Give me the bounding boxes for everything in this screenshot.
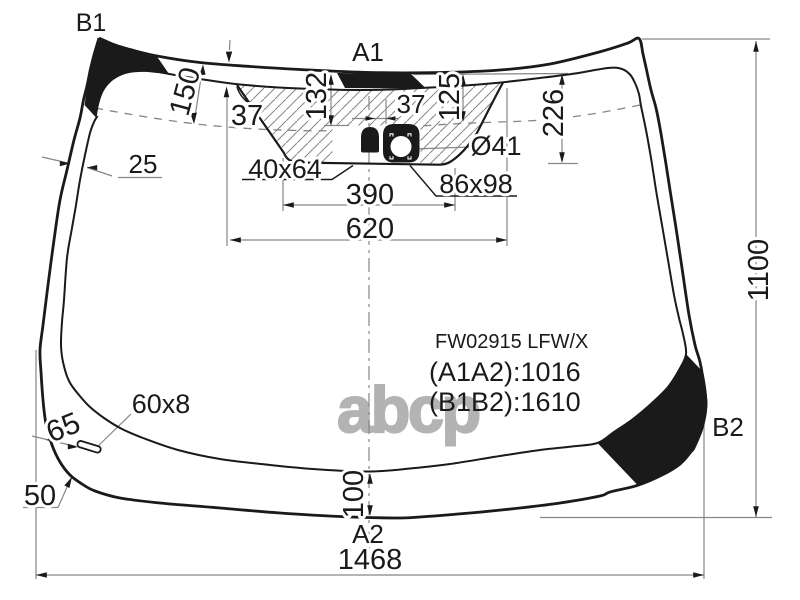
svg-text:25: 25	[129, 149, 158, 179]
svg-text:B1: B1	[76, 9, 107, 37]
svg-text:A1: A1	[352, 37, 384, 67]
svg-text:86x98: 86x98	[439, 169, 513, 199]
svg-text:132: 132	[301, 72, 333, 120]
svg-text:B2: B2	[712, 412, 744, 442]
svg-text:(B1B2):1610: (B1B2):1610	[429, 387, 581, 417]
svg-text:620: 620	[346, 213, 394, 245]
svg-text:37: 37	[397, 89, 426, 119]
svg-text:100: 100	[338, 470, 370, 518]
svg-text:390: 390	[346, 179, 394, 211]
svg-text:40x64: 40x64	[248, 154, 322, 184]
svg-text:1468: 1468	[338, 544, 403, 576]
svg-text:50: 50	[24, 480, 56, 512]
svg-text:125: 125	[434, 73, 466, 121]
svg-text:226: 226	[538, 89, 570, 137]
svg-text:Ø41: Ø41	[470, 131, 521, 161]
svg-text:37: 37	[231, 100, 263, 132]
svg-text:60x8: 60x8	[132, 389, 191, 419]
svg-text:(A1A2):1016: (A1A2):1016	[429, 357, 581, 387]
svg-text:FW02915 LFW/X: FW02915 LFW/X	[435, 331, 588, 353]
svg-text:1100: 1100	[743, 239, 775, 301]
